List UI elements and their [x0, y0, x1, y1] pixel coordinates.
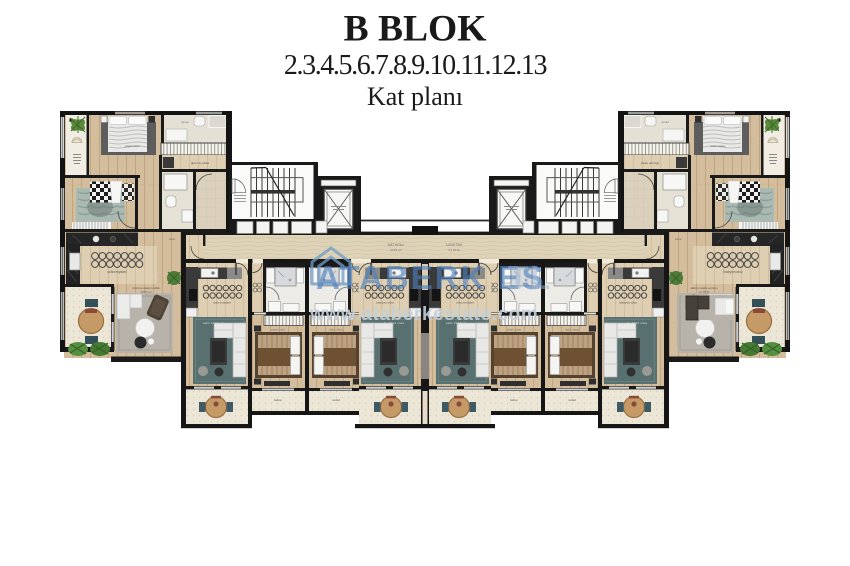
svg-text:B BLOK: B BLOK — [344, 9, 487, 50]
svg-text:www.ataberkestate.com: www.ataberkestate.com — [309, 304, 538, 325]
svg-text:Kat planı: Kat planı — [367, 82, 463, 111]
svg-text:TL: TL — [508, 259, 552, 296]
svg-text:2.3.4.5.6.7.8.9.10.11.12.13: 2.3.4.5.6.7.8.9.10.11.12.13 — [284, 50, 547, 81]
